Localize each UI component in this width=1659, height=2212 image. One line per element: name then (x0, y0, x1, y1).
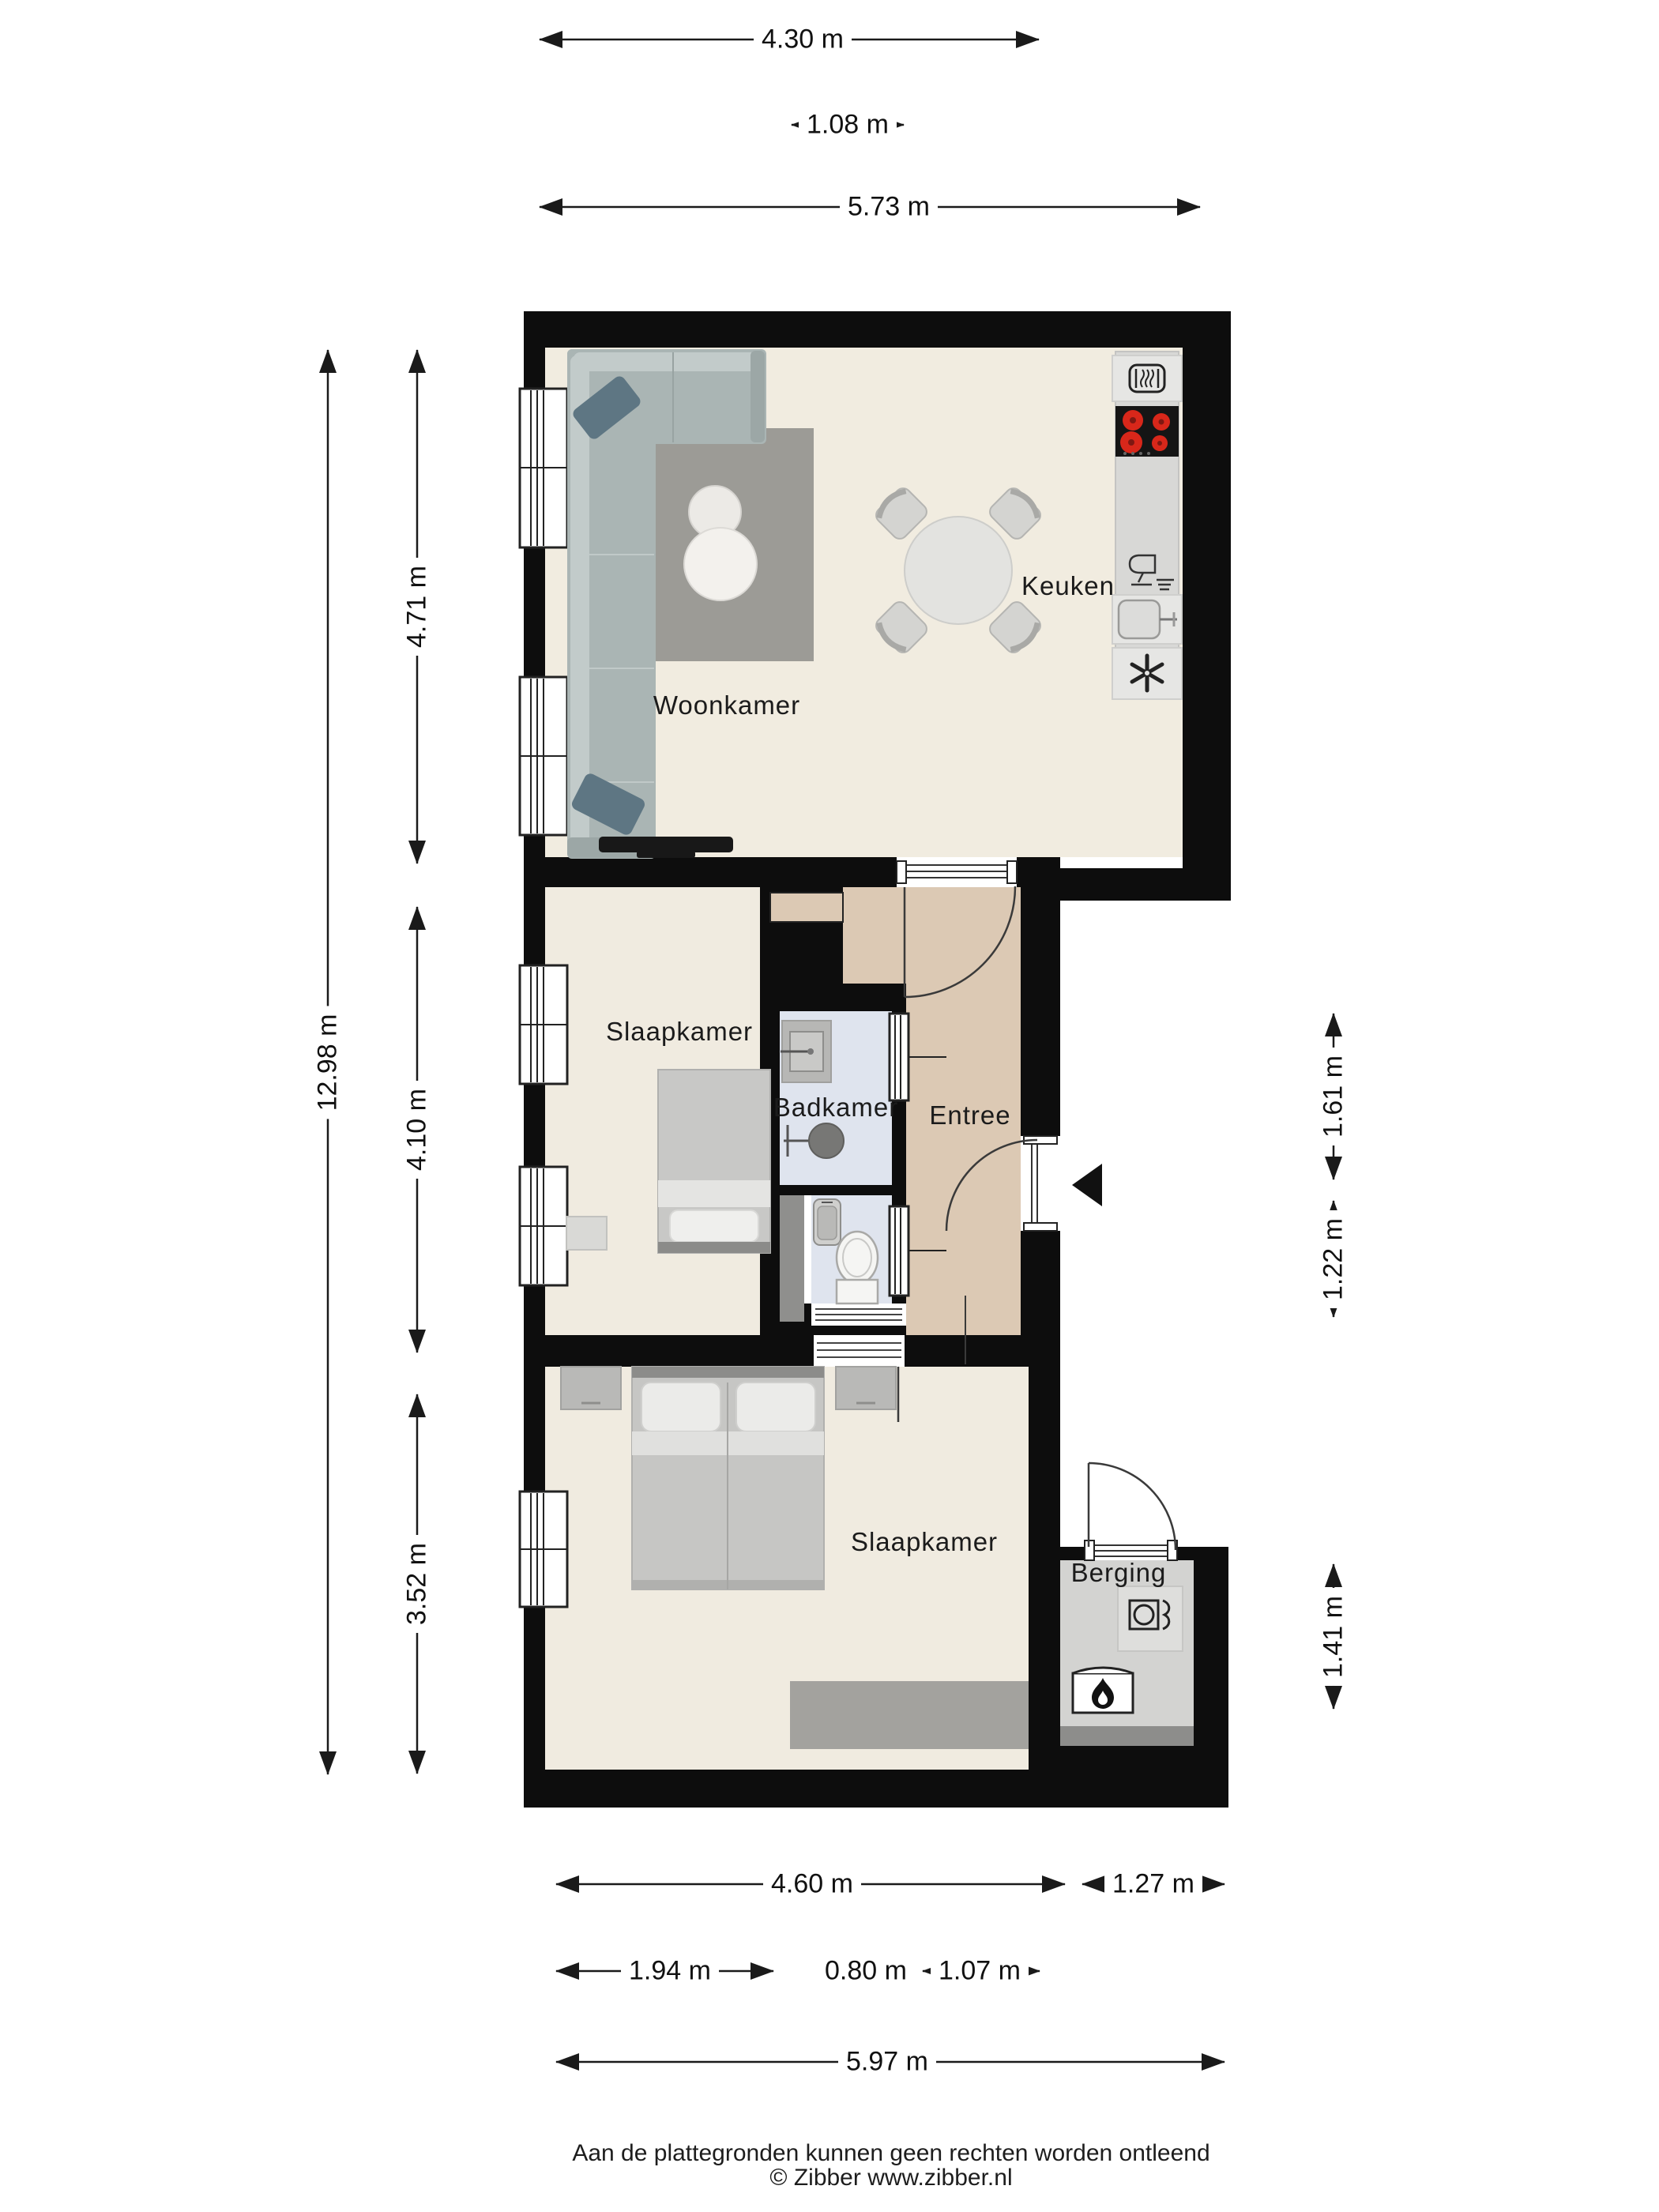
bed-single (658, 1070, 770, 1253)
dimension-label: 1.08 m (799, 110, 897, 139)
dimension-label: 1.07 m (931, 1956, 1029, 1985)
dimension-label: 4.10 m (402, 1081, 431, 1179)
door-threshold (897, 857, 1017, 887)
dimension-label: 12.98 m (313, 1006, 342, 1119)
nightstand (561, 1367, 621, 1409)
dimension-label: 1.61 m (1319, 1048, 1348, 1145)
dining-table (905, 517, 1012, 624)
room-label-slaapkamer-2: Slaapkamer (851, 1527, 998, 1557)
dimension-label: 4.71 m (402, 558, 431, 656)
door-arc (1089, 1463, 1176, 1550)
wardrobe (780, 1195, 804, 1322)
room-label-woonkamer: Woonkamer (653, 690, 800, 720)
dimension-label: 1.22 m (1319, 1210, 1348, 1308)
bedroom-door-threshold (814, 1335, 905, 1367)
bed-double (632, 1367, 824, 1589)
dimension-label: 1.94 m (621, 1956, 719, 1985)
kitchen-sink-icon (1112, 595, 1182, 644)
dimension-label: 1.27 m (1104, 1869, 1202, 1898)
entree-niche (770, 893, 843, 922)
window (520, 677, 567, 835)
toilet-icon (837, 1232, 878, 1303)
dimension-label: 5.73 m (840, 192, 938, 221)
boiler-flame-icon (1073, 1668, 1133, 1713)
floorplan-page: Woonkamer Keuken Slaapkamer Badkamer Ent… (0, 0, 1659, 2212)
wc-sink-icon (814, 1199, 841, 1245)
window (520, 389, 567, 547)
kitchen-counter (1112, 352, 1182, 699)
dimension-label: 0.80 m (817, 1956, 915, 1985)
room-label-badkamer: Badkamer (773, 1093, 898, 1123)
wc-threshold (811, 1303, 906, 1326)
side-table (566, 1217, 607, 1250)
stove-icon (1115, 406, 1179, 457)
entrance-marker-icon (1072, 1164, 1102, 1206)
extractor-fan-icon (1112, 648, 1182, 699)
room-label-entree: Entree (929, 1100, 1010, 1130)
room-label-berging: Berging (1071, 1558, 1167, 1588)
dimension-label: 1.41 m (1319, 1588, 1348, 1686)
footer-copyright: © Zibber www.zibber.nl (769, 2165, 1012, 2191)
dimension-label: 5.97 m (838, 2047, 936, 2076)
bathroom-sink-icon (781, 1021, 831, 1082)
footer-disclaimer: Aan de plattegronden kunnen geen rechten… (572, 2140, 1209, 2167)
washing-machine-icon (1118, 1586, 1183, 1651)
room-label-keuken: Keuken (1021, 571, 1115, 601)
dimension-label: 4.60 m (763, 1869, 861, 1898)
dimension-label: 3.52 m (402, 1535, 431, 1633)
nightstand (836, 1367, 896, 1409)
window (520, 965, 567, 1084)
oven-icon (1112, 355, 1182, 401)
window (520, 1492, 567, 1607)
rug (790, 1681, 1029, 1749)
dimension-label: 4.30 m (754, 24, 852, 54)
window (520, 1167, 567, 1285)
front-door (1021, 1136, 1060, 1231)
room-label-slaapkamer-1: Slaapkamer (606, 1017, 753, 1047)
